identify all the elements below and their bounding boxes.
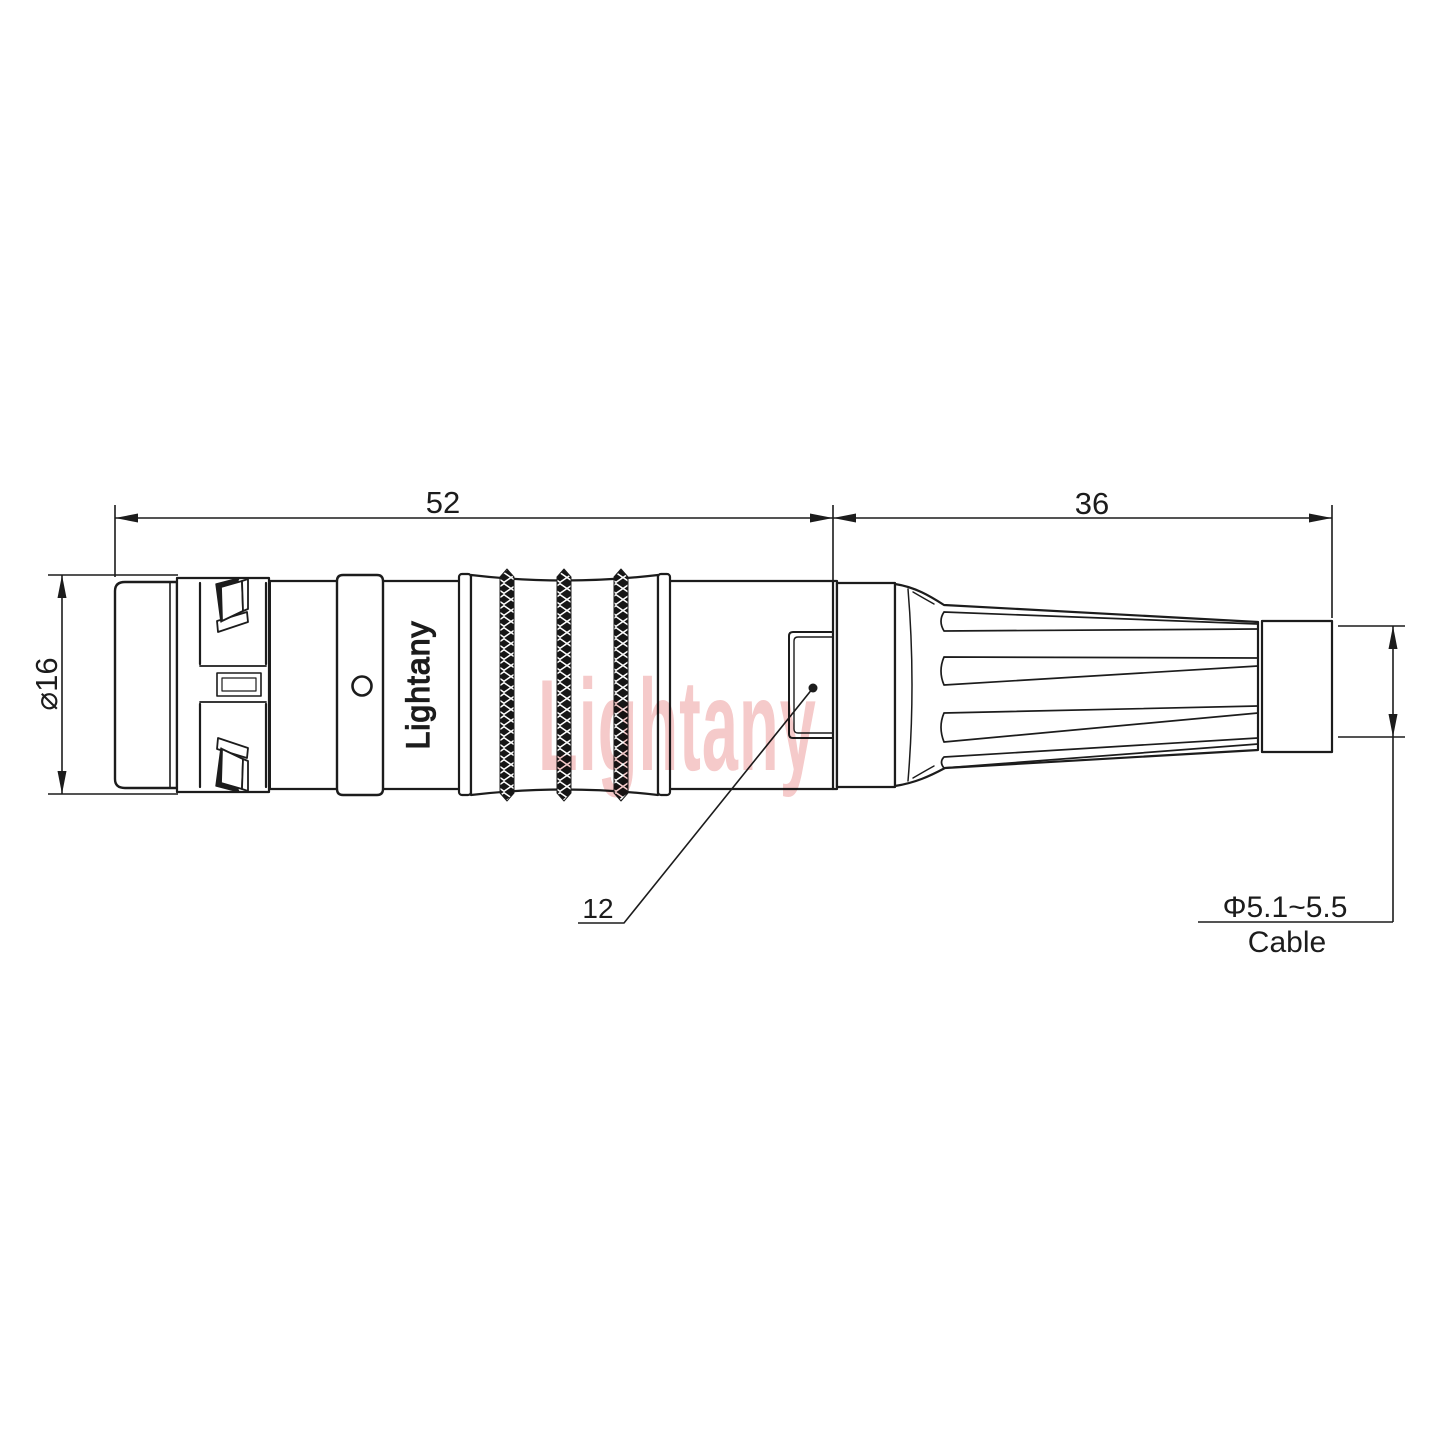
- knurl-right-ring: [658, 574, 670, 795]
- knurl-band-3: [614, 569, 628, 801]
- dim-key-width: 12: [582, 893, 613, 924]
- dim-overall-length: 52: [426, 485, 460, 520]
- dim-cable-diameter: Φ5.1~5.5: [1223, 891, 1348, 924]
- collar-hole: [353, 677, 372, 696]
- latch-tab-bottom: [216, 738, 248, 792]
- cable-label: Cable: [1248, 926, 1326, 959]
- knurl-band-2: [557, 569, 571, 801]
- brand-label: Lightany: [400, 621, 436, 750]
- dim-outer-diameter: ⌀16: [29, 657, 64, 710]
- knurl-left-ring: [459, 574, 471, 795]
- key-leader-dot: [809, 684, 818, 693]
- knurl-band-1: [500, 569, 514, 801]
- back-nut: [837, 583, 895, 787]
- dim-rear-length: 36: [1075, 486, 1109, 521]
- connector-drawing: Lightany 52 36 ⌀16 Φ5.1~5.5 Cable 12: [0, 0, 1440, 1440]
- latch-tab-top: [216, 578, 248, 632]
- cable-end-cap: [1262, 621, 1332, 752]
- drawing-canvas: Lightany 52 36 ⌀16 Φ5.1~5.5 Cable 12: [0, 0, 1440, 1440]
- connector-front-shell: [115, 582, 177, 788]
- latch-middle-recess-inner: [222, 678, 256, 691]
